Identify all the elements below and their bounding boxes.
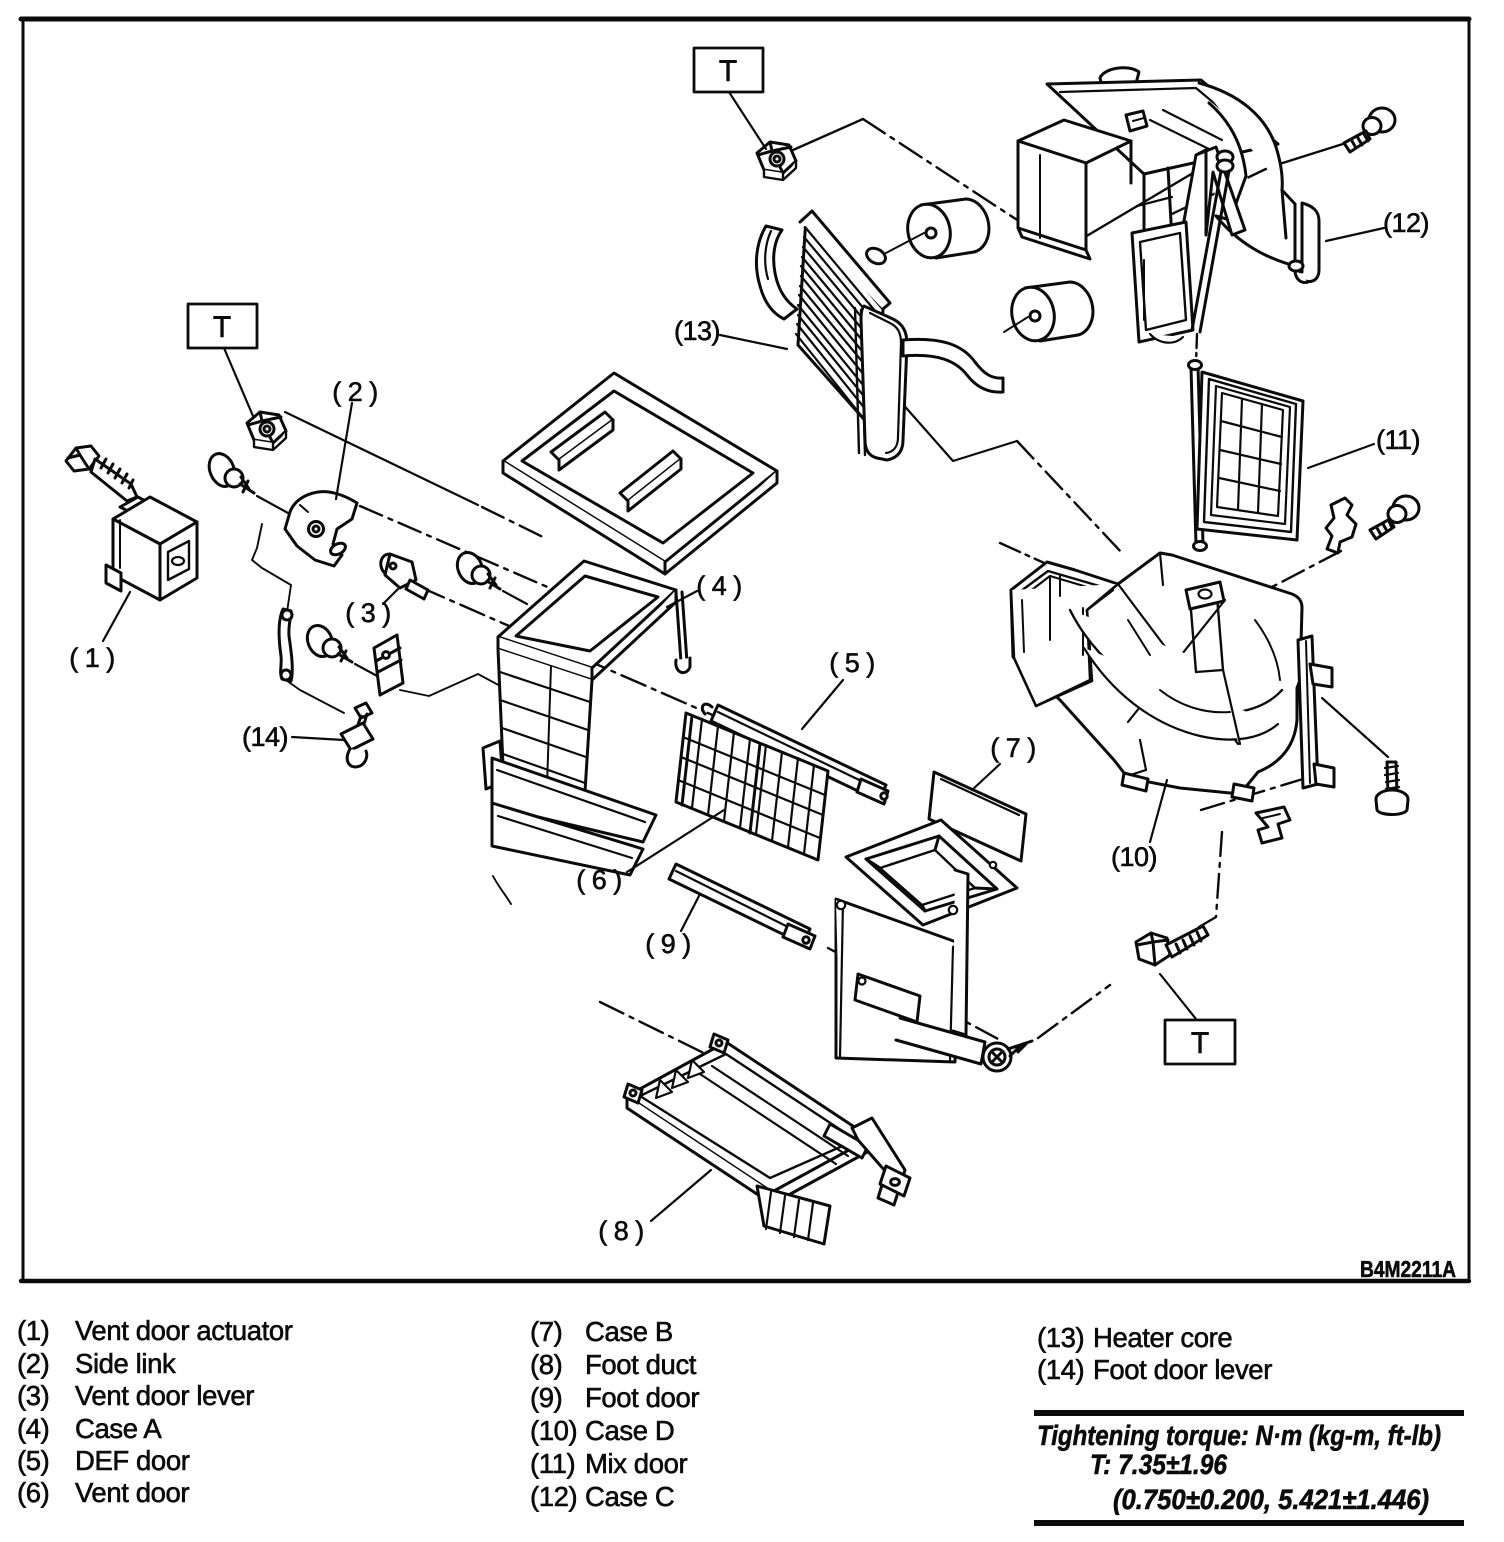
- svg-text:Foot door lever: Foot door lever: [1093, 1354, 1272, 1385]
- svg-text:T: T: [1191, 1027, 1209, 1060]
- svg-text:Case B: Case B: [585, 1316, 673, 1347]
- svg-text:Case A: Case A: [75, 1413, 162, 1444]
- svg-text:Mix door: Mix door: [585, 1448, 687, 1479]
- svg-text:(2): (2): [17, 1348, 49, 1379]
- svg-text:(14): (14): [1037, 1354, 1084, 1385]
- svg-text:Case C: Case C: [585, 1481, 674, 1512]
- svg-text:(1): (1): [17, 1315, 49, 1346]
- svg-text:(11): (11): [1376, 425, 1420, 455]
- svg-text:(8): (8): [530, 1349, 562, 1380]
- svg-text:Side link: Side link: [75, 1348, 176, 1379]
- svg-text:(9): (9): [530, 1382, 562, 1413]
- svg-text:(10): (10): [1111, 842, 1157, 872]
- svg-text:( 2 ): ( 2 ): [332, 377, 378, 407]
- svg-text:(13): (13): [1037, 1322, 1084, 1353]
- svg-text:Foot door: Foot door: [585, 1382, 699, 1413]
- svg-text:T: T: [213, 311, 231, 344]
- svg-text:Foot duct: Foot duct: [585, 1349, 697, 1380]
- svg-text:B4M2211A: B4M2211A: [1360, 1256, 1456, 1282]
- svg-text:(11): (11): [530, 1448, 575, 1479]
- svg-text:(5): (5): [17, 1445, 49, 1476]
- svg-text:( 1 ): ( 1 ): [69, 643, 115, 673]
- svg-text:T: 7.35±1.96: T: 7.35±1.96: [1090, 1449, 1227, 1480]
- svg-text:(7): (7): [530, 1316, 562, 1347]
- svg-text:DEF door: DEF door: [75, 1445, 190, 1476]
- svg-text:( 8 ): ( 8 ): [598, 1216, 644, 1246]
- svg-text:(10): (10): [530, 1415, 577, 1446]
- svg-text:Vent door actuator: Vent door actuator: [75, 1315, 293, 1346]
- svg-text:( 4 ): ( 4 ): [696, 571, 742, 601]
- svg-text:(12): (12): [530, 1481, 577, 1512]
- svg-text:( 6 ): ( 6 ): [576, 865, 622, 895]
- svg-text:( 3 ): ( 3 ): [345, 598, 391, 628]
- svg-text:(3): (3): [17, 1380, 49, 1411]
- svg-text:( 7 ): ( 7 ): [990, 733, 1036, 763]
- svg-text:Case D: Case D: [585, 1415, 674, 1446]
- svg-text:(12): (12): [1383, 208, 1429, 238]
- svg-text:(0.750±0.200, 5.421±1.446): (0.750±0.200, 5.421±1.446): [1113, 1484, 1429, 1515]
- svg-text:(6): (6): [17, 1477, 49, 1508]
- svg-text:Vent door lever: Vent door lever: [75, 1380, 254, 1411]
- svg-text:( 5 ): ( 5 ): [829, 648, 875, 678]
- svg-text:T: T: [719, 55, 737, 88]
- svg-text:(13): (13): [674, 316, 720, 346]
- svg-text:(4): (4): [17, 1413, 49, 1444]
- svg-text:Heater core: Heater core: [1093, 1322, 1232, 1353]
- svg-text:Vent door: Vent door: [75, 1477, 189, 1508]
- svg-text:Tightening torque: N·m (kg-m,: Tightening torque: N·m (kg-m, ft-lb): [1037, 1420, 1441, 1451]
- svg-text:(14): (14): [242, 722, 288, 752]
- svg-text:( 9 ): ( 9 ): [645, 929, 691, 959]
